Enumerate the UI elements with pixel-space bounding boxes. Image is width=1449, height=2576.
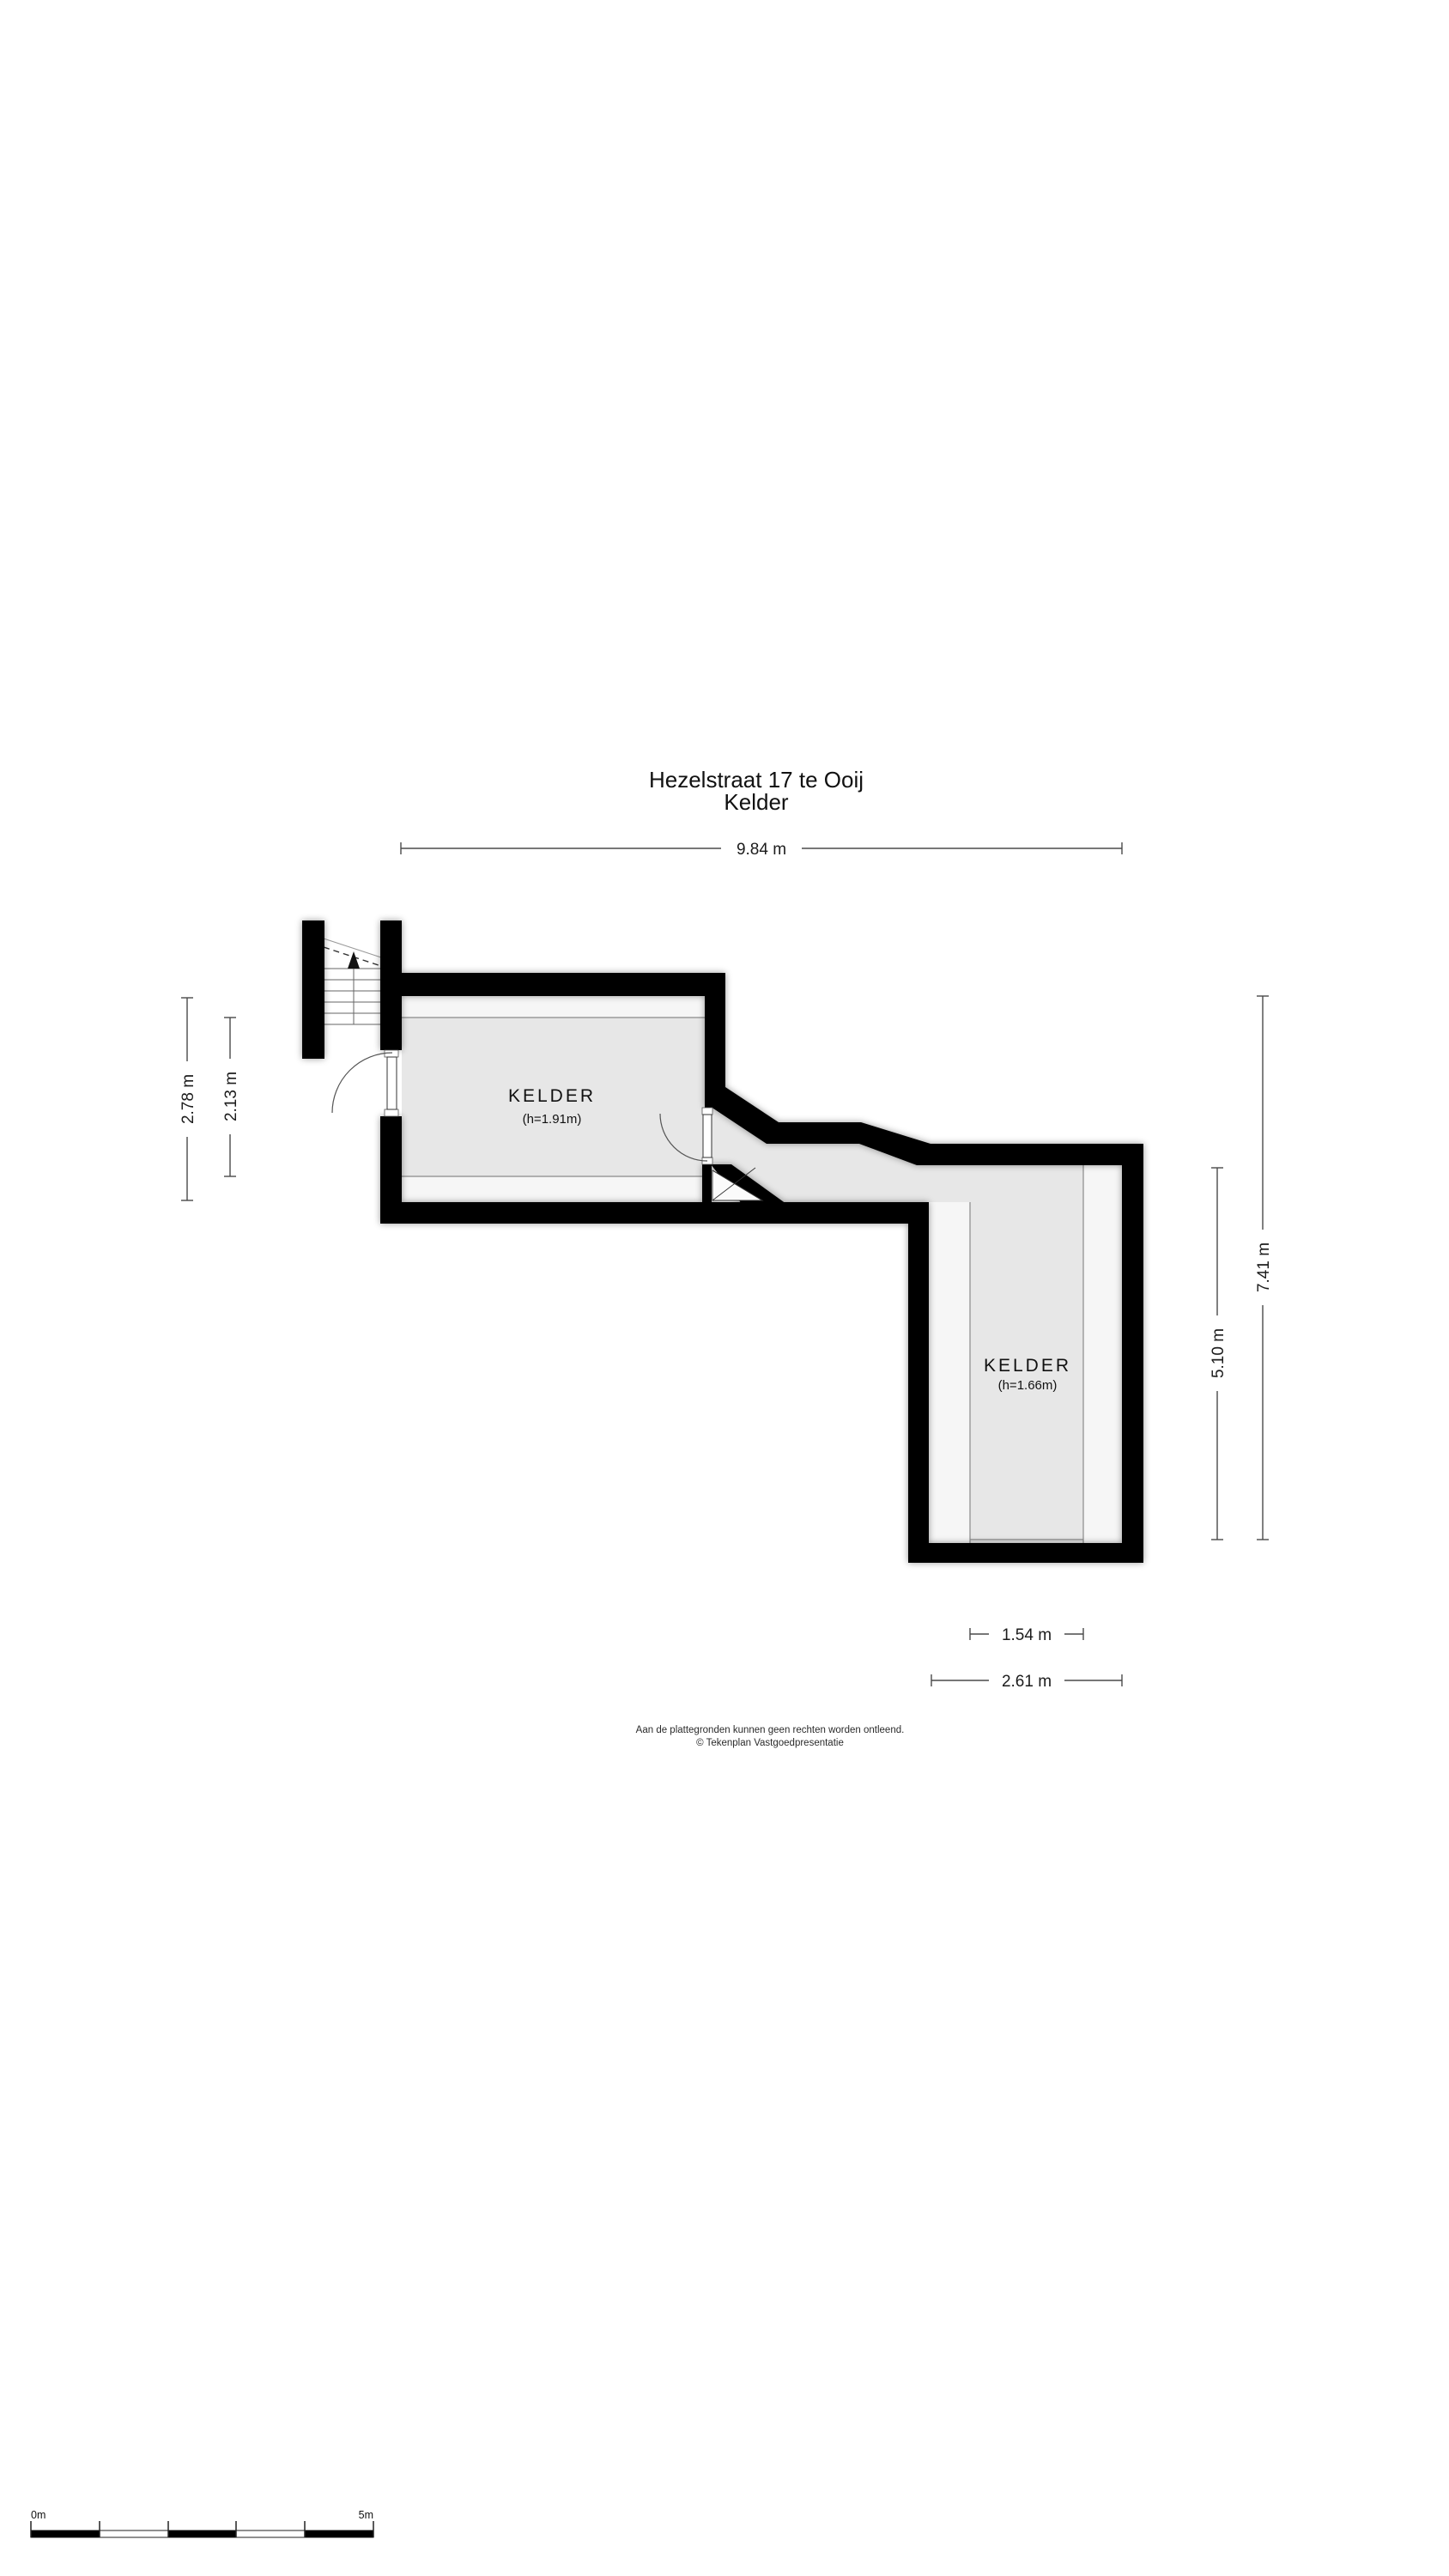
stairs [324, 939, 384, 1024]
dim-label: 7.41 m [1255, 1242, 1273, 1292]
dim-right-total: 7.41 m [1255, 996, 1273, 1540]
scale-end-label: 5m [359, 2509, 373, 2521]
dim-label: 2.78 m [179, 1074, 197, 1124]
room2-label: KELDER [984, 1356, 1071, 1376]
wall-room2-right [1122, 1144, 1143, 1563]
wall-room1-right [705, 973, 725, 1108]
wall-room1-left-lower [380, 1116, 402, 1202]
door-stairs [332, 1050, 398, 1116]
dim-total-width: 9.84 m [401, 841, 1122, 859]
dim-room2-width-inner: 1.54 m [970, 1626, 1083, 1644]
dim-label: 5.10 m [1210, 1328, 1228, 1378]
floorplan-page: Hezelstraat 17 te Ooij Kelder [0, 0, 1449, 2576]
disclaimer-line1: Aan de plattegronden kunnen geen rechten… [636, 1725, 905, 1735]
dim-room1-height-inner: 2.13 m [222, 1018, 240, 1176]
floor-fills [402, 996, 1122, 1543]
dim-label: 1.54 m [1002, 1626, 1052, 1644]
scale-bar-segment [168, 2530, 236, 2537]
dim-room1-height-outer: 2.78 m [179, 998, 197, 1200]
wall-room1-top [402, 973, 725, 996]
wall-room2-left [908, 1202, 929, 1563]
door-leaf [703, 1115, 712, 1157]
room1-height-note: (h=1.91m) [523, 1112, 582, 1127]
wall-room1-left-upper [380, 920, 402, 1050]
floorplan-drawing: Hezelstraat 17 te Ooij Kelder [0, 0, 1449, 2576]
dim-room2-width-outer: 2.61 m [931, 1673, 1122, 1691]
scale-bar-segment [31, 2530, 100, 2537]
dim-label: 2.61 m [1002, 1673, 1052, 1691]
dim-room2-height: 5.10 m [1210, 1168, 1228, 1540]
door-leaf [387, 1057, 397, 1109]
wall-room1-bottom [380, 1202, 929, 1224]
door-swing-arc [332, 1053, 392, 1113]
dim-label: 2.13 m [222, 1072, 240, 1121]
scale-bar: 0m 5m [31, 2509, 373, 2537]
room2-side-strip-right [1083, 1165, 1122, 1543]
dim-label: 9.84 m [737, 841, 786, 859]
door-jamb [385, 1109, 398, 1116]
wall-stair-left [302, 920, 324, 1059]
wall-room2-bottom [908, 1543, 1143, 1563]
stairs-up-arrow-icon [348, 951, 360, 969]
door-jamb [702, 1108, 712, 1115]
scale-start-label: 0m [31, 2509, 45, 2521]
wall-step-strip [702, 1164, 712, 1204]
door-jamb [385, 1050, 398, 1057]
page-subtitle: Kelder [724, 789, 788, 815]
room1-label: KELDER [508, 1086, 596, 1106]
scale-bar-segment [305, 2530, 373, 2537]
room2-height-note: (h=1.66m) [998, 1378, 1058, 1393]
disclaimer-line2: © Tekenplan Vastgoedpresentatie [696, 1738, 844, 1748]
room2-side-strip-left [929, 1202, 970, 1543]
